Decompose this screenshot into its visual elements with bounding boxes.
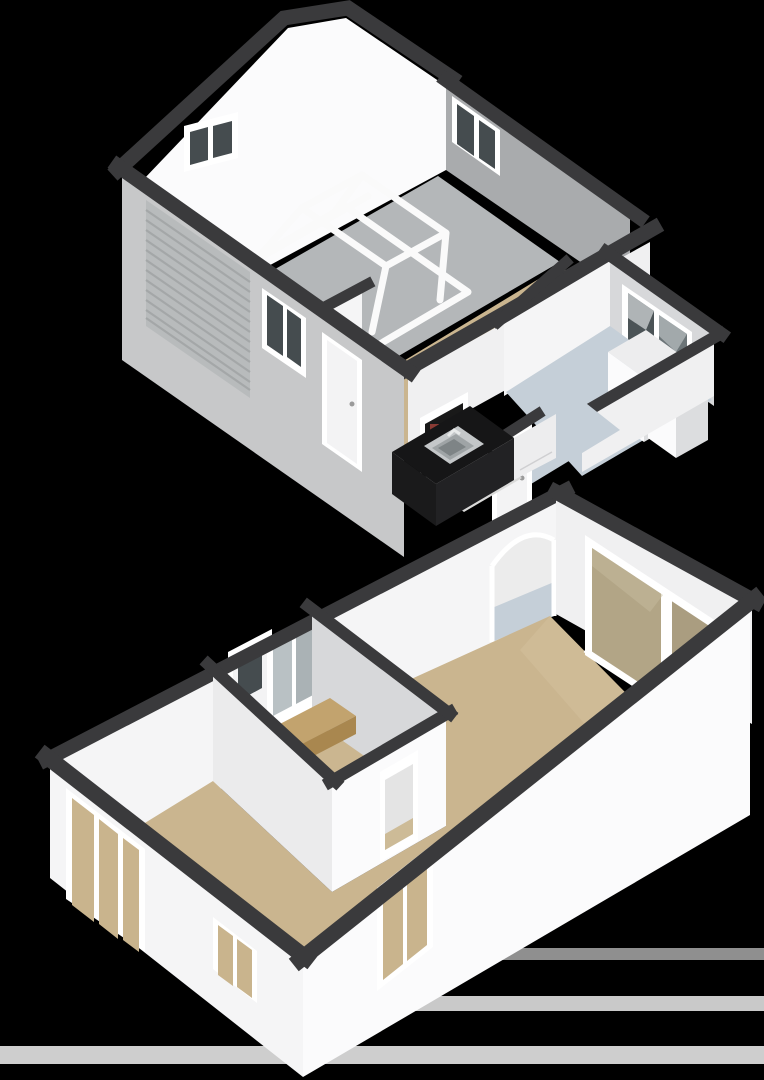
door-handle: [350, 402, 355, 407]
floorplan-stage: [0, 0, 764, 1080]
reflection-strip: [383, 996, 764, 1011]
floorplan-viewport[interactable]: [0, 0, 764, 1080]
reflection-strip: [0, 1046, 764, 1064]
